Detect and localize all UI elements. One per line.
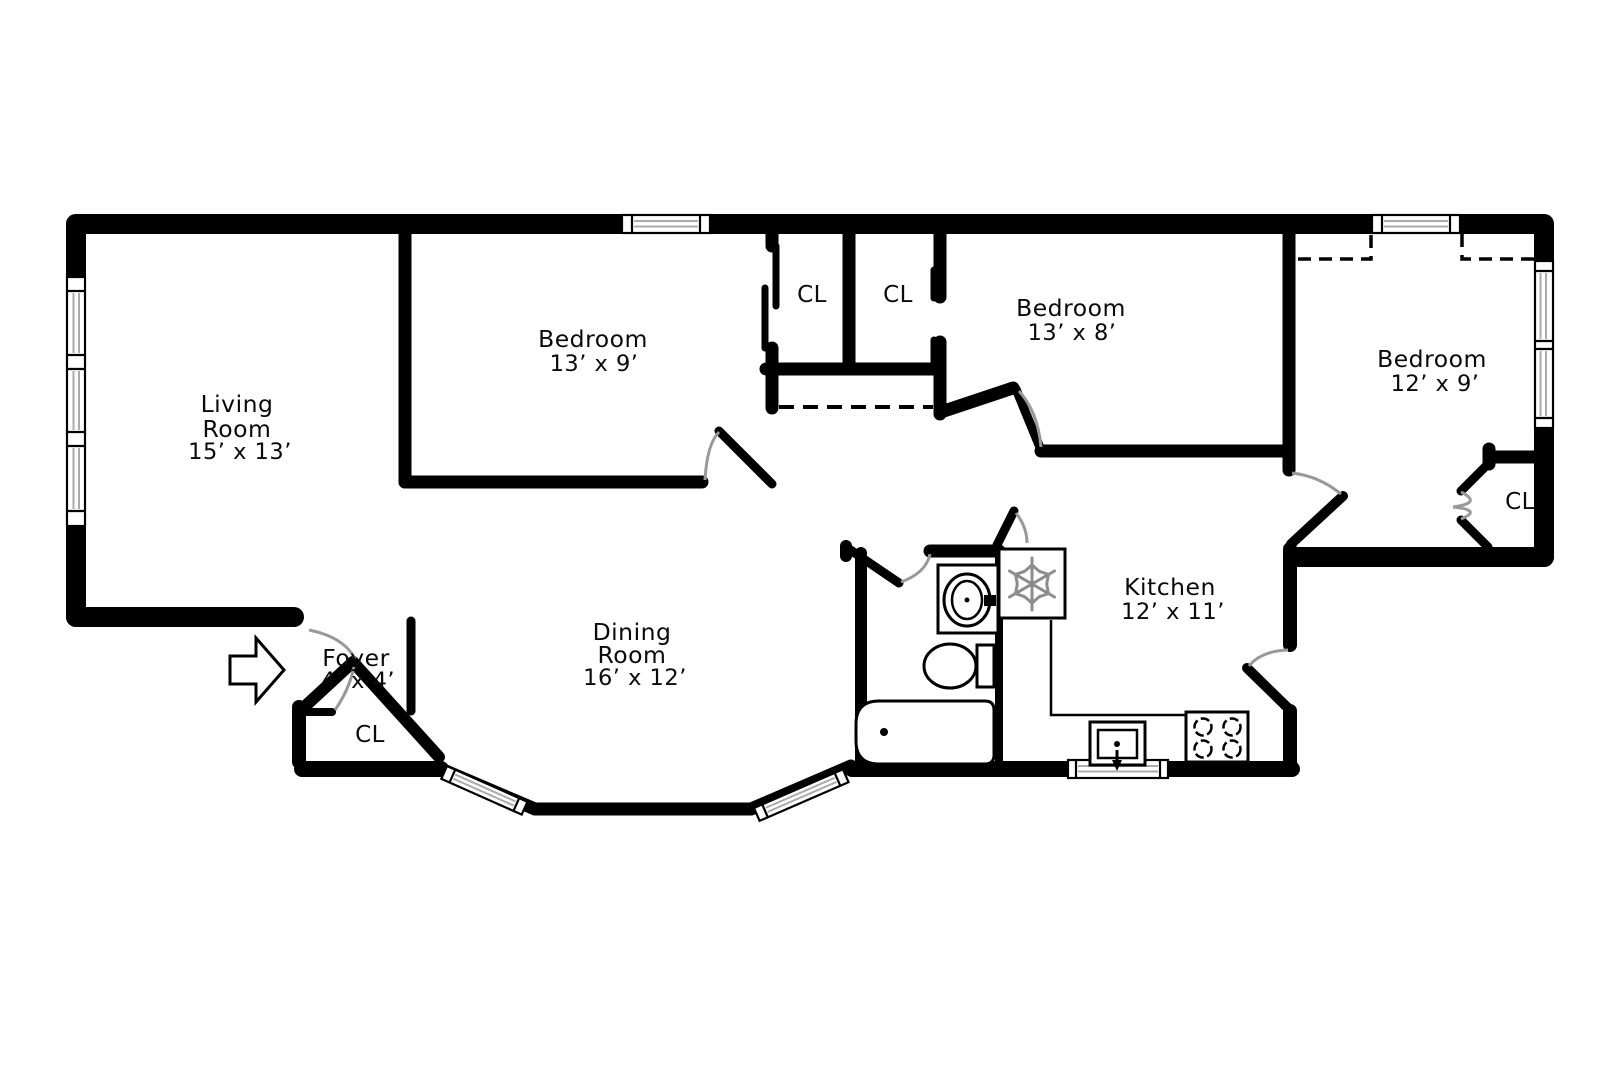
entry-arrow-icon bbox=[230, 638, 284, 702]
kitchen-counter bbox=[1051, 620, 1186, 715]
bedroom-right-dims: 12’ x 9’ bbox=[1391, 371, 1480, 397]
refrigerator-icon bbox=[999, 549, 1065, 618]
bathroom-sink-icon bbox=[938, 565, 998, 633]
hall-closet-right-label: CL bbox=[883, 282, 913, 308]
kitchen-sink-icon bbox=[1090, 722, 1145, 771]
bedroom-right-name: Bedroom bbox=[1377, 345, 1487, 373]
bedroom-left-name: Bedroom bbox=[538, 325, 648, 353]
kitchen-name: Kitchen bbox=[1124, 573, 1216, 601]
interior-walls bbox=[301, 230, 1541, 762]
hall-closet-left-label: CL bbox=[797, 282, 827, 308]
bedroom-right-closet-label: CL bbox=[1505, 489, 1535, 515]
toilet-icon bbox=[924, 644, 994, 688]
dining-bay-window-left bbox=[441, 766, 527, 815]
dining-room-dims: 16’ x 12’ bbox=[583, 665, 687, 691]
bedroom-left-window bbox=[622, 215, 710, 233]
bedroom-left-dims: 13’ x 9’ bbox=[550, 351, 639, 377]
stove-icon bbox=[1186, 712, 1248, 762]
living-room-dims: 15’ x 13’ bbox=[188, 439, 292, 465]
living-room-name-line1: Living bbox=[201, 390, 274, 418]
bedroom-middle-name: Bedroom bbox=[1016, 294, 1126, 322]
bedroom-middle-dims: 13’ x 8’ bbox=[1028, 320, 1117, 346]
foyer-dims: 4’ x 4’ bbox=[321, 668, 395, 694]
bathtub-icon bbox=[856, 701, 994, 764]
kitchen-dims: 12’ x 11’ bbox=[1121, 599, 1225, 625]
bedroom-right-top-window bbox=[1372, 215, 1460, 233]
bedroom-right-side-window bbox=[1535, 261, 1553, 428]
floor-plan-canvas: Living Room 15’ x 13’ Bedroom 13’ x 9’ C… bbox=[0, 0, 1620, 1080]
foyer-closet-label: CL bbox=[355, 722, 385, 748]
floor-plan: Living Room 15’ x 13’ Bedroom 13’ x 9’ C… bbox=[0, 0, 1620, 1080]
living-room-window bbox=[67, 277, 85, 526]
